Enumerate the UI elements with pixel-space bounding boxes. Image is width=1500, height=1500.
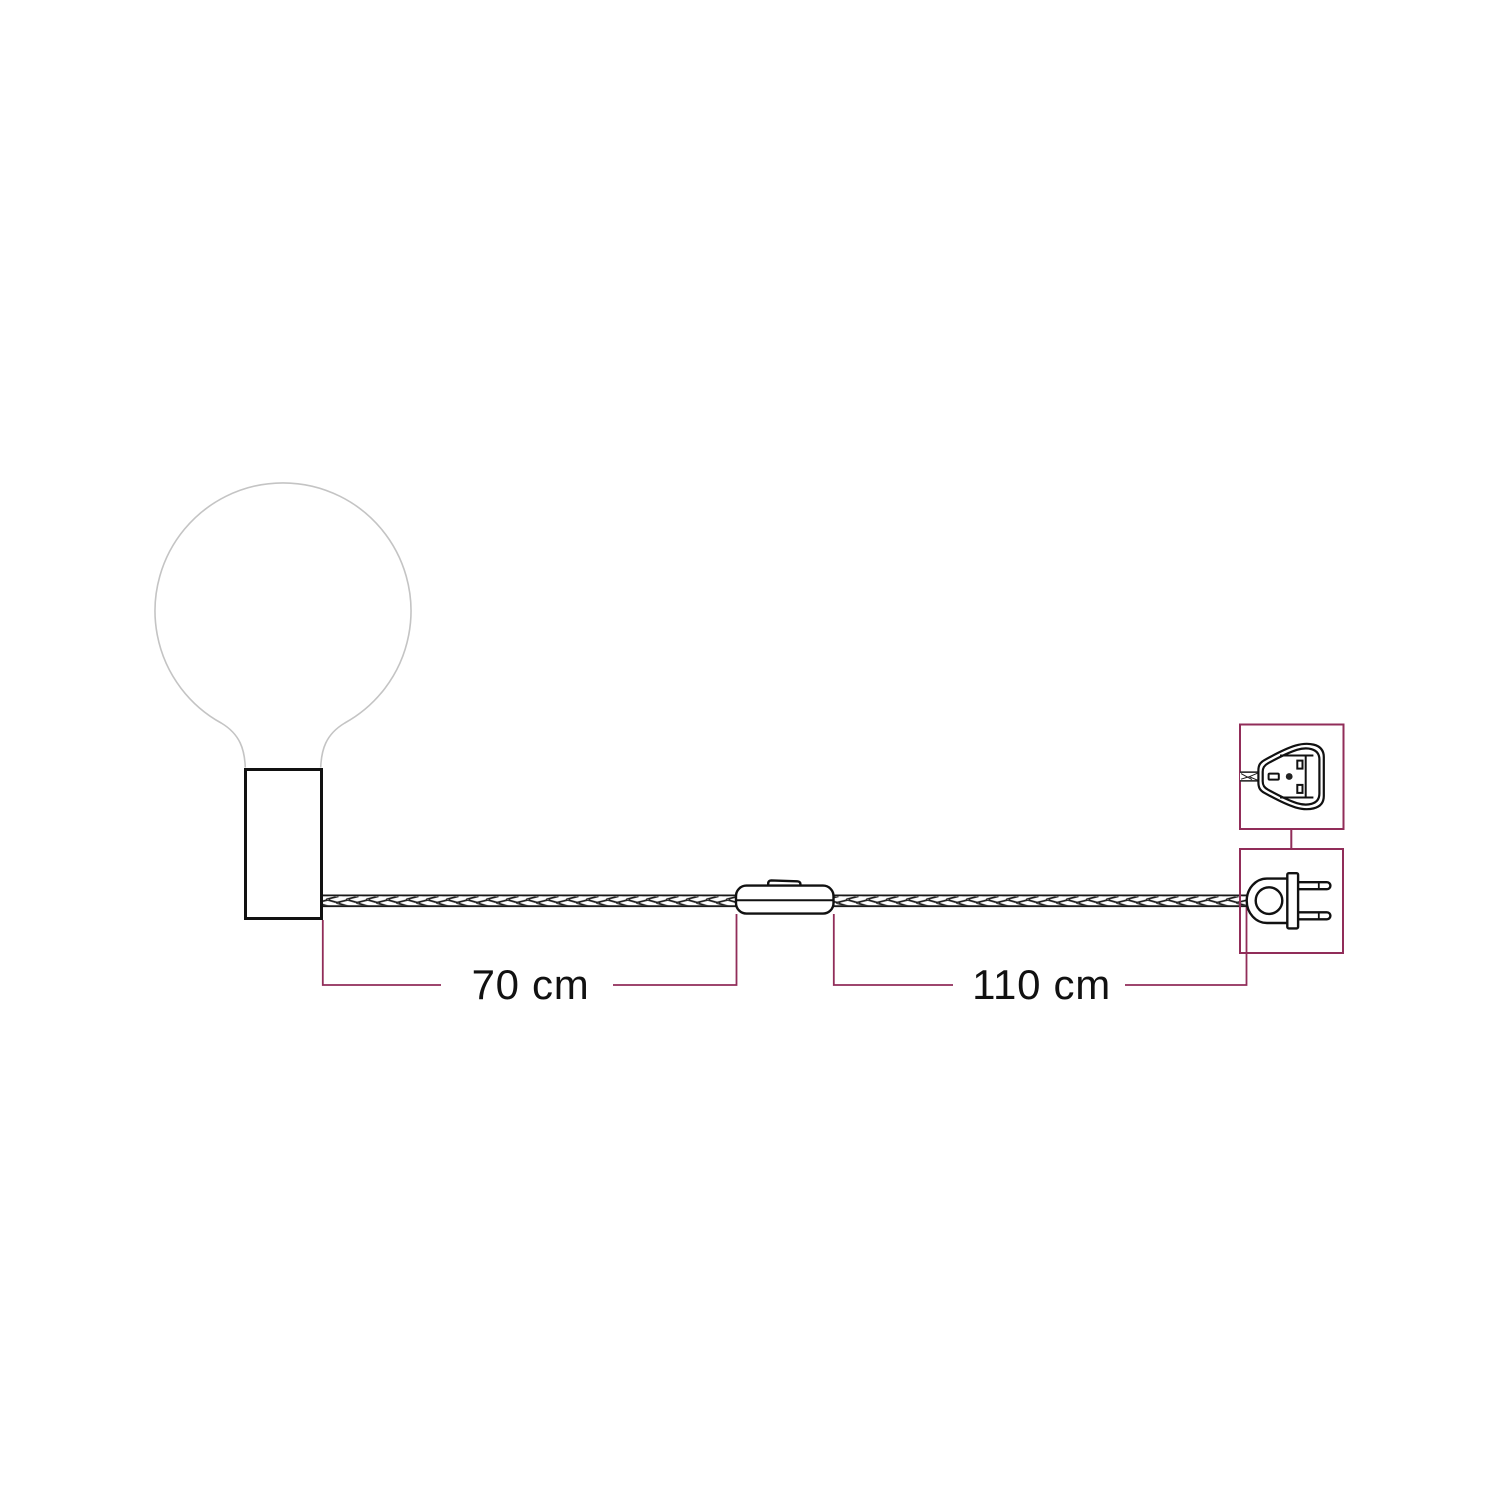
svg-text:70 cm: 70 cm — [472, 961, 590, 1008]
svg-text:110 cm: 110 cm — [972, 961, 1111, 1008]
